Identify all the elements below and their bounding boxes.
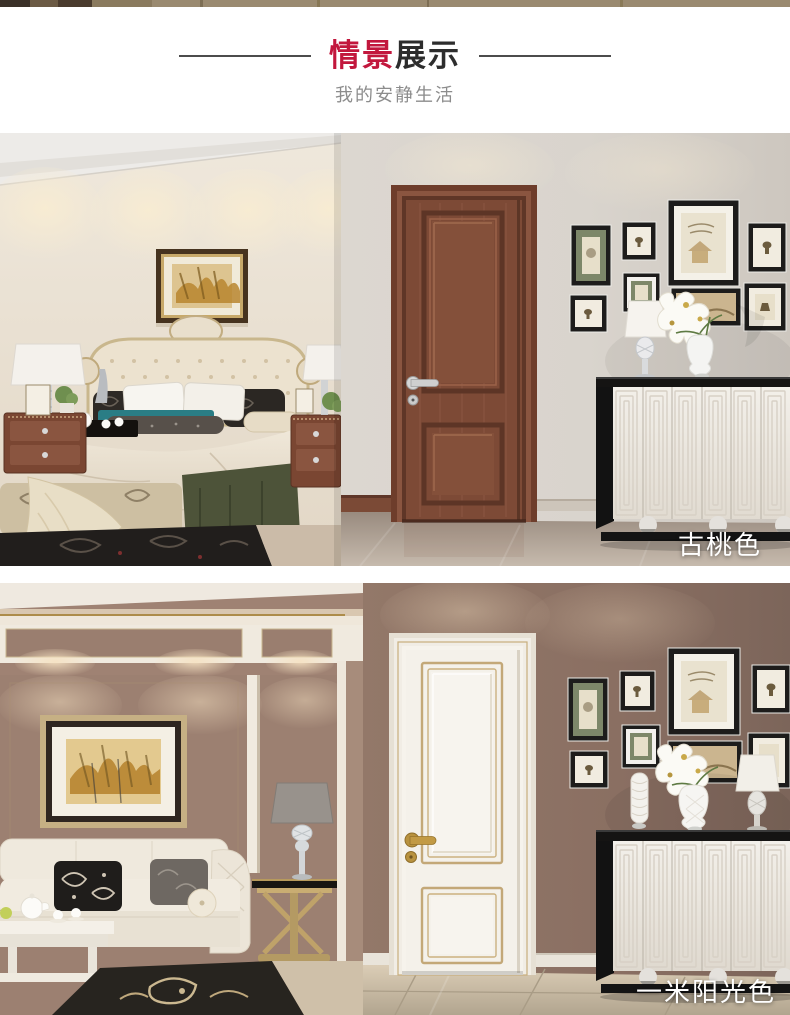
scene-photo-walnut-door: 古桃色 <box>0 133 790 566</box>
photo-gap <box>0 566 790 583</box>
door-lower-panel <box>424 425 502 503</box>
picture-frame <box>570 751 608 788</box>
title-rest-text: 展示 <box>395 38 461 73</box>
living-room-scene-image <box>0 583 790 1015</box>
title-accent-text: 情景 <box>329 38 395 73</box>
bedroom-wall-art <box>156 249 248 327</box>
picture-frame-family <box>668 648 740 735</box>
beaded-vase <box>631 773 648 829</box>
section-subtitle: 我的安静生活 <box>0 81 790 107</box>
section-header: 情景展示 我的安静生活 <box>0 7 790 133</box>
scene-photo-white-door: 一米阳光色 <box>0 583 790 1015</box>
door-upper-panel <box>424 213 502 391</box>
door-color-label: 一米阳光色 <box>636 979 776 1005</box>
door-upper-panel <box>422 663 502 863</box>
title-rule-left <box>179 55 311 57</box>
picture-frame <box>622 222 656 260</box>
picture-frame-family <box>668 200 739 286</box>
section-title: 情景展示 <box>329 40 461 71</box>
picture-frame <box>568 678 608 741</box>
picture-frame <box>748 223 786 272</box>
title-row: 情景展示 <box>0 40 790 71</box>
picture-frame <box>620 671 655 711</box>
bedroom-through-opening <box>0 133 378 566</box>
door-color-label: 古桃色 <box>678 532 762 558</box>
previous-section-image-edge <box>0 0 790 7</box>
white-gold-door <box>389 633 536 975</box>
picture-frame <box>571 225 611 286</box>
title-rule-right <box>479 55 611 57</box>
picture-frame <box>622 725 660 768</box>
living-room-wall-art <box>40 715 187 828</box>
picture-frame <box>752 665 790 713</box>
picture-frame <box>570 295 607 332</box>
bedroom-scene-image <box>0 133 790 566</box>
living-room-section <box>0 583 363 1015</box>
door-lower-panel <box>422 888 502 963</box>
walnut-door <box>391 185 537 523</box>
